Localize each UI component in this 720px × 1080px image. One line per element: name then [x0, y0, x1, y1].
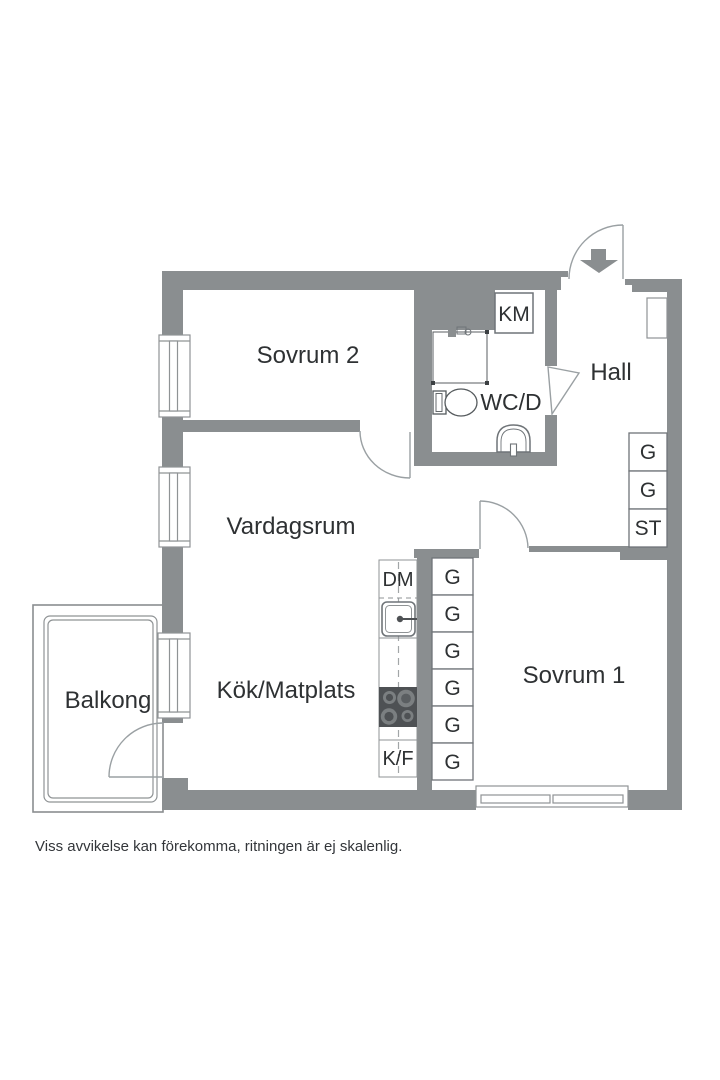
- hall-closet-label: G: [640, 479, 656, 502]
- wall-corridor-c: [620, 546, 667, 560]
- hall-cabinet: [647, 298, 667, 338]
- kitchen-closet-label: G: [444, 714, 460, 737]
- fridge-freezer-label: K/F: [382, 748, 413, 770]
- room-label-kok: Kök/Matplats: [217, 677, 356, 704]
- toilet-icon: [433, 389, 477, 416]
- wall-top-right: [625, 279, 682, 292]
- disclaimer-text: Viss avvikelse kan förekomma, ritningen …: [35, 838, 402, 855]
- wall-sovrum2-vardagsrum: [183, 420, 360, 432]
- floor-plan-page: Sovrum 2 Hall WC/D Vardagsrum Kök/Matpla…: [0, 0, 720, 1080]
- wall-wcd-right-lower: [545, 415, 557, 466]
- entrance-jamb-left: [561, 277, 568, 290]
- wall-left-2: [162, 417, 183, 467]
- window-vardagsrum: [159, 467, 190, 547]
- window-balcony: [158, 633, 190, 718]
- window-sovrum1: [476, 786, 628, 807]
- kitchen-closet-label: G: [444, 603, 460, 626]
- washing-machine-label: KM: [498, 303, 530, 326]
- window-sovrum2: [159, 335, 190, 417]
- kitchen-closet-label: G: [444, 566, 460, 589]
- wall-right: [667, 292, 682, 810]
- wall-top: [162, 271, 568, 290]
- room-label-wcd: WC/D: [480, 389, 541, 415]
- wall-left-5: [162, 778, 188, 790]
- door-wcd: [548, 367, 579, 414]
- kitchen-closet-column: [432, 558, 473, 780]
- wall-kitchen-divider: [417, 549, 432, 805]
- hall-closet-label: ST: [635, 517, 662, 540]
- floor-plan: Sovrum 2 Hall WC/D Vardagsrum Kök/Matpla…: [0, 0, 720, 1080]
- shower-icon: [431, 327, 489, 385]
- kitchen-sink-icon: [382, 602, 417, 636]
- wall-wcd-right-upper: [545, 290, 557, 366]
- dishwasher-label: DM: [382, 569, 413, 591]
- wall-corridor-b: [529, 546, 620, 552]
- wall-left-1: [162, 271, 183, 335]
- kitchen-closet-label: G: [444, 751, 460, 774]
- room-label-sovrum1: Sovrum 1: [523, 662, 626, 689]
- entrance-jamb-right: [625, 285, 632, 292]
- door-balcony: [109, 723, 163, 777]
- room-label-hall: Hall: [590, 359, 631, 386]
- wall-wcd-bottom: [414, 452, 557, 466]
- door-sovrum1: [480, 501, 528, 549]
- walls: [162, 271, 682, 810]
- kitchen-counter: [379, 560, 417, 777]
- room-label-sovrum2: Sovrum 2: [257, 342, 360, 369]
- kitchen-closet-label: G: [444, 640, 460, 663]
- room-label-balkong: Balkong: [65, 687, 152, 714]
- wall-wcd-chunk: [432, 288, 495, 330]
- wall-wcd-left: [414, 288, 432, 460]
- hall-closet-label: G: [640, 441, 656, 464]
- kitchen-closet-label: G: [444, 677, 460, 700]
- washbasin-icon: [497, 425, 530, 456]
- wall-left-3: [162, 547, 183, 633]
- door-vardagsrum: [360, 431, 410, 478]
- room-label-vardagsrum: Vardagsrum: [227, 513, 356, 540]
- stove-icon: [379, 687, 417, 727]
- entrance-arrow-icon: [580, 249, 618, 273]
